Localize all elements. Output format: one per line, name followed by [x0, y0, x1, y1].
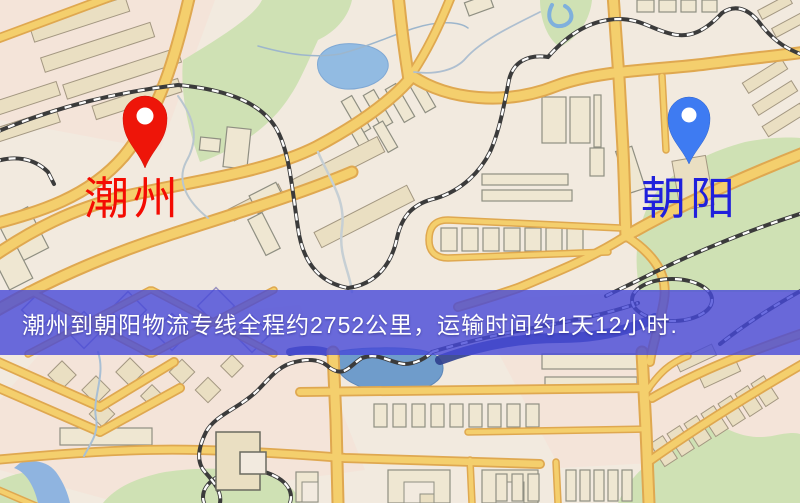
destination-city-label: 朝阳 [641, 177, 739, 222]
route-info-text: 潮州到朝阳物流专线全程约2752公里，运输时间约1天12小时. [0, 306, 678, 340]
map-background [0, 0, 800, 503]
origin-city-label: 潮州 [84, 177, 182, 222]
buildings-overlay [216, 432, 266, 490]
map-canvas[interactable]: 潮州 朝阳 潮州到朝阳物流专线全程约2752公里，运输时间约1天12小时. [0, 0, 800, 503]
route-info-banner: 潮州到朝阳物流专线全程约2752公里，运输时间约1天12小时. [0, 290, 800, 355]
destination-pin-icon[interactable] [668, 97, 710, 164]
